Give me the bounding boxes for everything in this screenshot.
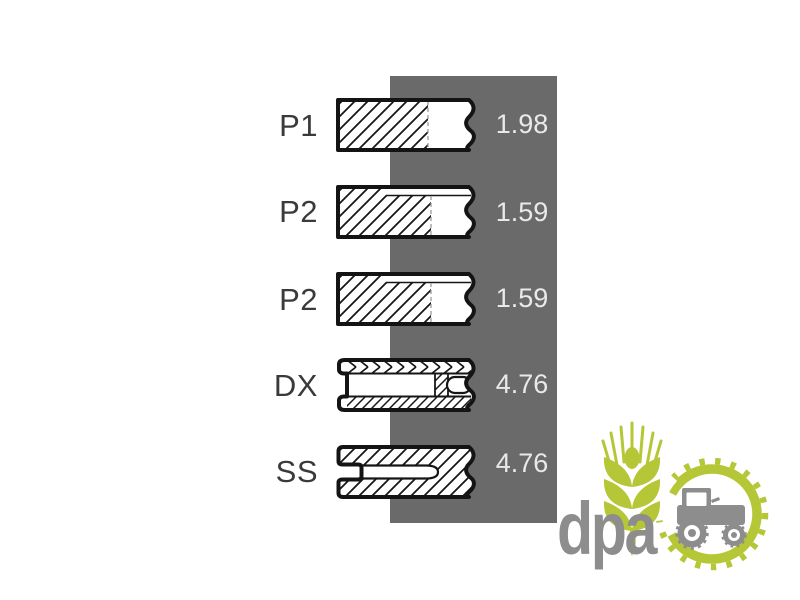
ring-cross-section-slotted-oil: [334, 443, 482, 501]
ring-label-p2: P2: [230, 195, 318, 229]
ring-thickness-value: 1.59: [494, 283, 550, 313]
ring-cross-section-taper: [334, 270, 482, 328]
tractor-icon: [677, 488, 745, 548]
ring-label-dx: DX: [230, 369, 318, 403]
ring-cross-section-taper: [334, 183, 482, 241]
ring-thickness-value: 1.98: [494, 109, 550, 139]
ring-thickness-value: 4.76: [494, 448, 550, 478]
dpa-watermark-logo: dpa: [553, 415, 800, 595]
ring-thickness-value: 1.59: [494, 197, 550, 227]
product-image: P1 1.98 P2 1.59 P2: [0, 0, 800, 600]
ring-cross-section-compression: [334, 96, 482, 154]
ring-label-p1: P1: [230, 109, 318, 143]
dpa-logo-text: dpa: [557, 492, 655, 566]
ring-thickness-value: 4.76: [494, 369, 550, 399]
ring-label-ss: SS: [230, 455, 318, 489]
ring-label-p2: P2: [230, 283, 318, 317]
ring-cross-section-oil-control: [334, 356, 482, 414]
